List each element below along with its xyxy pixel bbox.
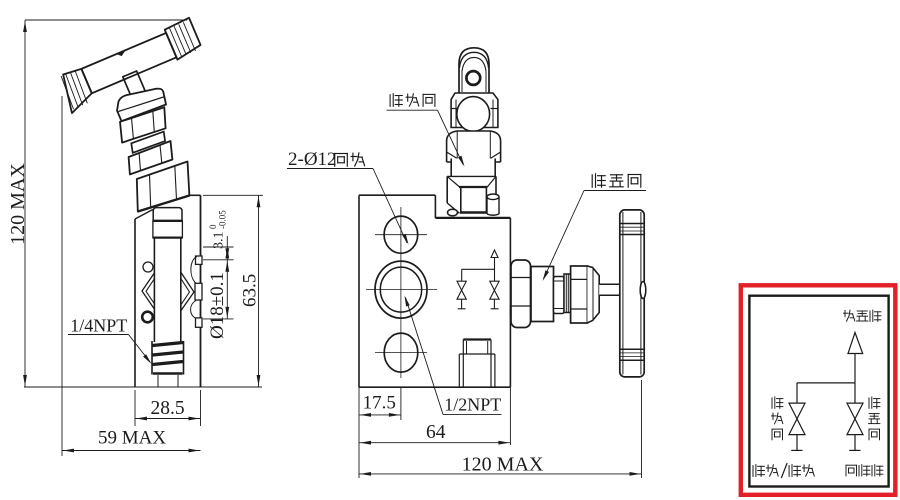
svg-text:0: 0 (208, 224, 218, 229)
svg-text:-0.05: -0.05 (218, 210, 228, 229)
svg-text:120 MAX: 120 MAX (462, 454, 544, 476)
svg-text:2-Ø12: 2-Ø12 (288, 149, 337, 170)
svg-text:120 MAX: 120 MAX (7, 163, 29, 245)
svg-text:Ø18±0.1: Ø18±0.1 (207, 272, 228, 339)
svg-text:3.1: 3.1 (212, 232, 227, 250)
svg-text:1/2NPT: 1/2NPT (444, 394, 501, 414)
svg-text:63.5: 63.5 (240, 274, 261, 307)
svg-text:64: 64 (426, 422, 446, 443)
svg-text:59 MAX: 59 MAX (98, 428, 166, 449)
svg-text:28.5: 28.5 (150, 398, 184, 419)
svg-text:17.5: 17.5 (363, 393, 396, 414)
svg-text:1/4NPT: 1/4NPT (70, 316, 127, 336)
